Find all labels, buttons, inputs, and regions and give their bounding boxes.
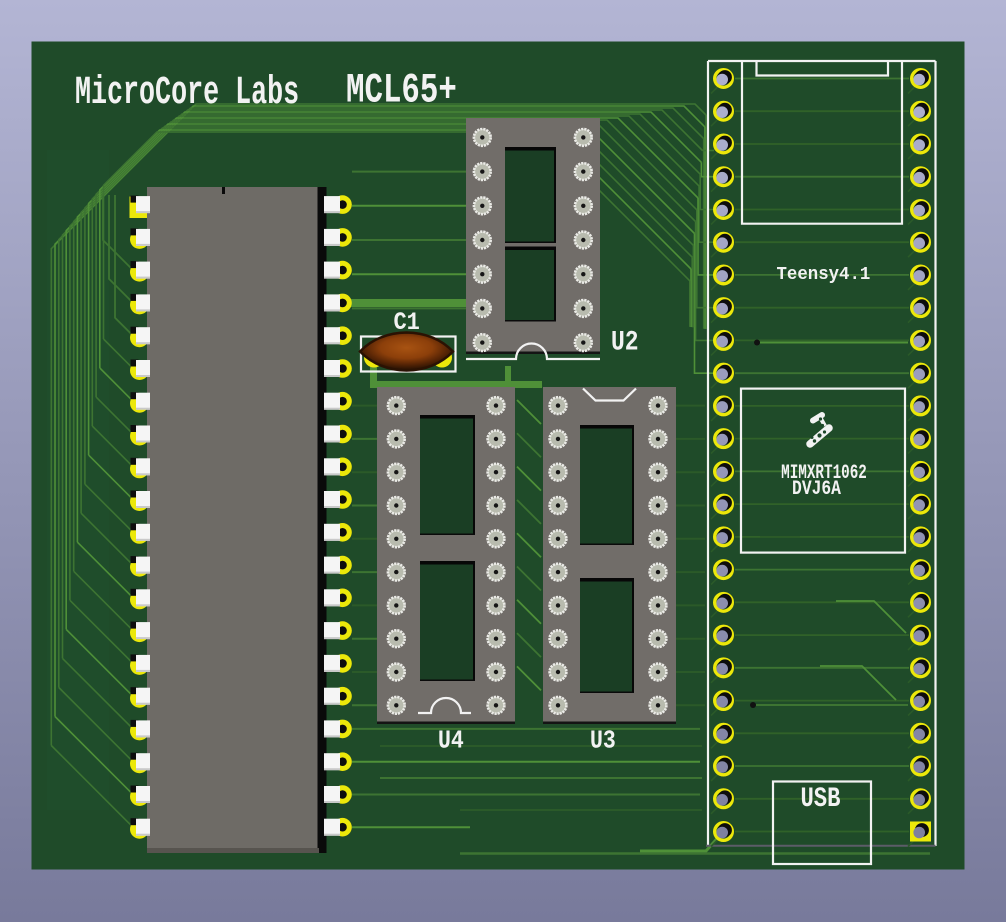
svg-text:Teensy4.1: Teensy4.1 — [777, 265, 871, 286]
svg-text:DVJ6A: DVJ6A — [792, 479, 841, 501]
svg-text:MCL65+: MCL65+ — [346, 67, 457, 114]
svg-text:USB: USB — [801, 783, 841, 815]
svg-text:U3: U3 — [590, 727, 616, 756]
svg-text:U4: U4 — [438, 727, 464, 756]
svg-text:MicroCore Labs: MicroCore Labs — [75, 71, 299, 116]
svg-text:U2: U2 — [611, 327, 639, 359]
